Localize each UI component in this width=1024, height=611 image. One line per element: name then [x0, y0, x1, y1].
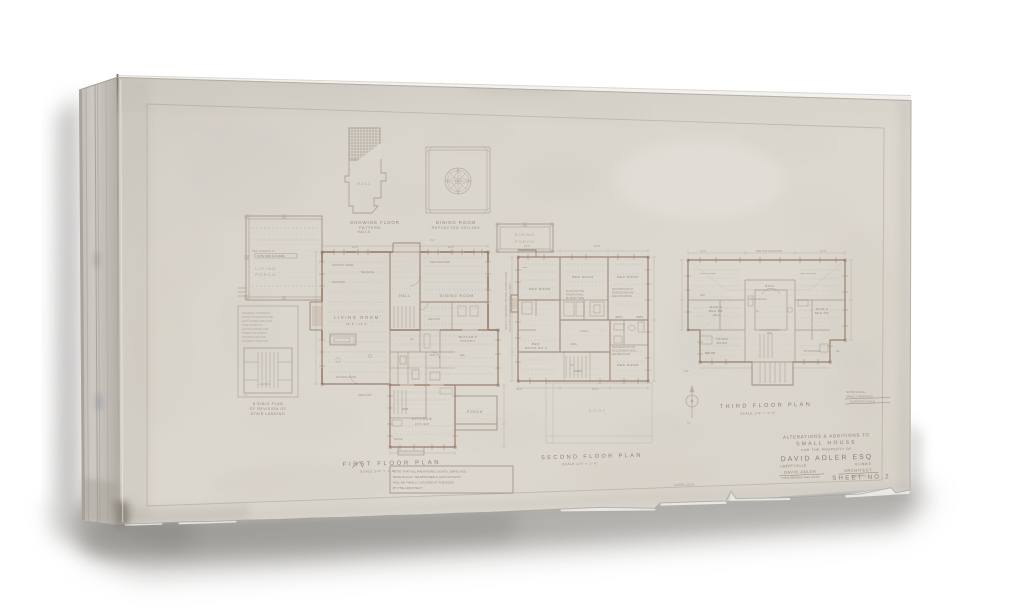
svg-text:WILL BE FINALLY LOCATED AT THE: WILL BE FINALLY LOCATED AT THE BLDG: [393, 481, 455, 485]
svg-text:BED ROOM: BED ROOM: [529, 287, 550, 291]
svg-text:ILLINOIS: ILLINOIS: [855, 462, 871, 466]
svg-text:BE RESET HERE: BE RESET HERE: [566, 298, 585, 300]
svg-text:20'-6": 20'-6": [592, 387, 599, 391]
svg-text:BATH: BATH: [616, 315, 623, 319]
svg-text:LINEN: LINEN: [570, 344, 577, 346]
svg-text:SINK: SINK: [430, 354, 436, 357]
svg-text:DINING ROOM: DINING ROOM: [440, 294, 475, 298]
svg-text:24'-0": 24'-0": [524, 244, 531, 248]
svg-text:HALL: HALL: [399, 294, 411, 298]
svg-text:LIVING: LIVING: [255, 266, 277, 271]
svg-text:DOWN: DOWN: [574, 369, 582, 373]
svg-text:FLOOR AND RE-USE: FLOOR AND RE-USE: [242, 327, 269, 331]
svg-text:RAD: RAD: [700, 294, 705, 297]
svg-text:BED ROOM: BED ROOM: [617, 363, 638, 367]
svg-text:DINING: DINING: [515, 233, 536, 237]
svg-text:AS PER PLAN AND: AS PER PLAN AND: [242, 335, 266, 339]
svg-text:HALLS: HALLS: [357, 230, 370, 234]
svg-text:TAKE DOWN TO ...: TAKE DOWN TO ...: [242, 323, 266, 327]
svg-text:SEE DETAIL SHEETS FOR TRIM AND: SEE DETAIL SHEETS FOR TRIM AND SASH: [509, 283, 512, 332]
svg-text:SMALL DRAWINGS: SMALL DRAWINGS: [846, 395, 873, 399]
svg-text:18'-0": 18'-0": [448, 245, 455, 249]
svg-text:STAIR LANDING: STAIR LANDING: [251, 412, 285, 416]
svg-text:LIBERTYVILLE: LIBERTYVILLE: [780, 464, 807, 469]
svg-text:PORCH: PORCH: [255, 272, 276, 277]
svg-text:NEW: NEW: [522, 267, 528, 269]
svg-text:BATH: BATH: [637, 315, 644, 319]
svg-text:PORCH: PORCH: [515, 240, 535, 244]
svg-text:SEE FOR ELEVATION: SEE FOR ELEVATION: [756, 249, 782, 253]
svg-text:RISERS TO PORCH: RISERS TO PORCH: [242, 331, 267, 335]
svg-text:LA ARC 22-F2: LA ARC 22-F2: [674, 483, 695, 487]
svg-text:EXISTING FLOOR: EXISTING FLOOR: [336, 376, 356, 379]
svg-text:NEW SASH HERE: NEW SASH HERE: [430, 261, 450, 264]
svg-text:NEW OPNG: NEW OPNG: [332, 281, 345, 284]
svg-text:9'-6": 9'-6": [684, 369, 689, 373]
svg-text:CL: CL: [410, 337, 414, 341]
svg-text:14'-0" x 11'-6": 14'-0" x 11'-6": [415, 423, 430, 426]
svg-text:NOTE THAT THE: NOTE THAT THE: [566, 290, 584, 293]
svg-text:NOTE THAT ALL RADIATORS, LIGHT: NOTE THAT ALL RADIATORS, LIGHTS, SWITCHE…: [393, 470, 467, 474]
svg-text:HALL: HALL: [357, 181, 372, 186]
svg-text:ROOM: ROOM: [717, 341, 728, 345]
svg-text:NO 1: NO 1: [713, 313, 720, 317]
svg-text:BED ROOM: BED ROOM: [572, 275, 593, 279]
svg-text:12'-0": 12'-0": [820, 249, 827, 253]
svg-text:SEE NOTE ABOVE: SEE NOTE ABOVE: [612, 295, 633, 298]
svg-text:RADIATOR UNDER: RADIATOR UNDER: [332, 264, 354, 267]
svg-text:SCALE 1/4" = 1'-0": SCALE 1/4" = 1'-0": [360, 469, 396, 474]
svg-text:ROOM NO 1: ROOM NO 1: [525, 346, 548, 350]
svg-text:LINE OF CEILING: LINE OF CEILING: [748, 299, 767, 301]
svg-text:BASE PLUGS, TELEPHONES & GAS O: BASE PLUGS, TELEPHONES & GAS OUTLETS: [393, 475, 461, 479]
svg-text:NEW DORMER: NEW DORMER: [800, 273, 817, 275]
svg-text:NOTE ALL NEW WORK THIS SIDE TO: NOTE ALL NEW WORK THIS SIDE TO MATCH EXI…: [505, 271, 508, 330]
svg-text:NOTE SCALE: NOTE SCALE: [846, 390, 865, 394]
svg-text:STORAGE: STORAGE: [804, 349, 820, 353]
svg-text:NEW RADIATOR AND: NEW RADIATOR AND: [612, 346, 635, 349]
svg-text:RANGE: RANGE: [394, 438, 403, 441]
svg-text:18'-0": 18'-0": [594, 244, 601, 248]
svg-text:DN: DN: [570, 365, 574, 367]
svg-text:NEW PARTITION AT: NEW PARTITION AT: [612, 288, 634, 291]
svg-text:24'-0": 24'-0": [516, 387, 523, 391]
svg-text:DINING ROOM: DINING ROOM: [436, 220, 476, 225]
svg-text:LANDING: LANDING: [258, 382, 270, 386]
svg-text:SEE NOTE: SEE NOTE: [428, 318, 440, 321]
svg-text:BATH: BATH: [765, 284, 774, 288]
svg-text:NEW TERRACE FL: NEW TERRACE FL: [252, 249, 275, 253]
svg-text:BED RM: BED RM: [815, 311, 829, 315]
svg-text:BED RM: BED RM: [705, 351, 715, 355]
svg-text:LIVING ROOM: LIVING ROOM: [334, 315, 380, 320]
svg-text:4'-6": 4'-6": [430, 238, 435, 242]
svg-text:22'-6" x 13'-0": 22'-6" x 13'-0": [346, 322, 368, 326]
svg-text:EXISTING BATH RM: EXISTING BATH RM: [612, 292, 634, 295]
svg-text:SHOWING FLOOR: SHOWING FLOOR: [350, 220, 400, 225]
svg-text:14'-0": 14'-0": [700, 249, 707, 253]
svg-text:NEW DOOR: NEW DOOR: [358, 394, 372, 397]
svg-text:WORK TO REMOVE THE: WORK TO REMOVE THE: [242, 315, 273, 319]
svg-text:24'-6": 24'-6": [352, 245, 359, 249]
svg-text:N'SIBLE PLAN: N'SIBLE PLAN: [253, 402, 283, 406]
svg-text:EXST STAIRS AND AND: EXST STAIRS AND AND: [242, 319, 272, 323]
svg-text:UP: UP: [244, 394, 248, 397]
svg-text:KITCHEN: KITCHEN: [412, 417, 432, 421]
svg-text:RADIATOR WILL: RADIATOR WILL: [566, 294, 584, 297]
svg-text:NOTE NEW FLR HERE: NOTE NEW FLR HERE: [257, 254, 285, 258]
svg-text:ROOF: ROOF: [589, 409, 608, 413]
svg-text:OF REVISION OF: OF REVISION OF: [250, 407, 287, 411]
svg-text:ARCHITECT: ARCHITECT: [844, 468, 872, 473]
svg-text:STAIRWAY SECTION: STAIRWAY SECTION: [242, 339, 268, 343]
svg-text:GENERAL CONTRACT: GENERAL CONTRACT: [242, 311, 271, 315]
svg-text:BY THE ARCHITECT: BY THE ARCHITECT: [393, 486, 423, 490]
svg-text:REFLECTED CEILING: REFLECTED CEILING: [432, 226, 481, 230]
